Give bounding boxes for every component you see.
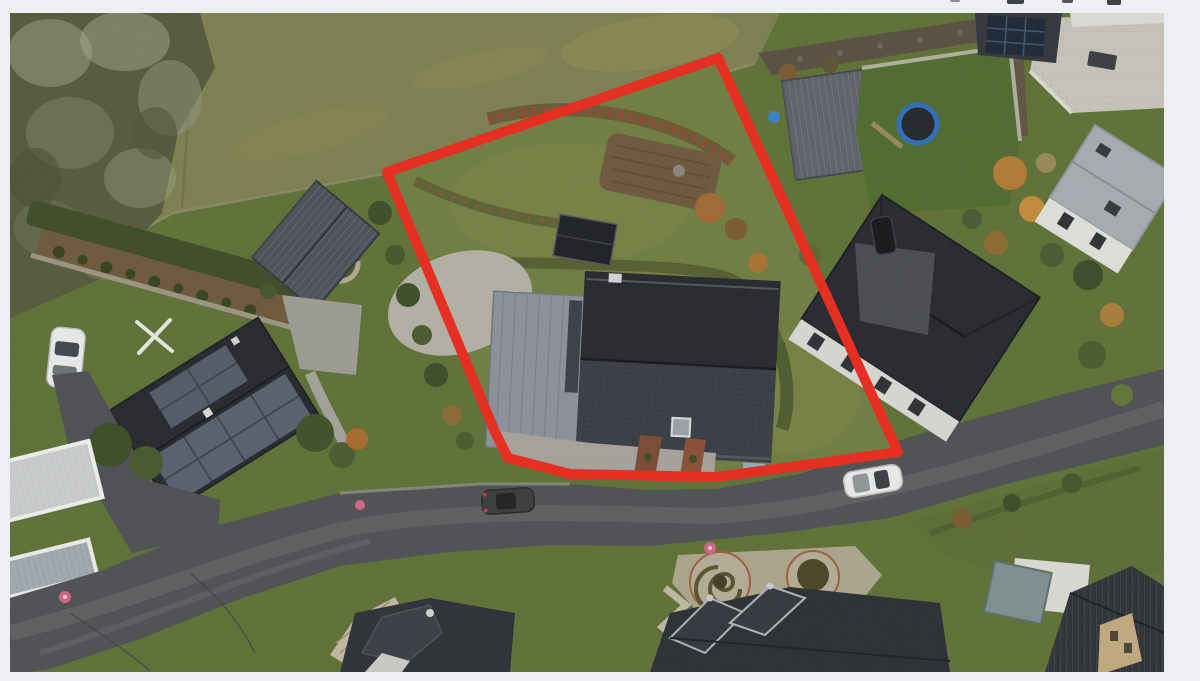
- toolbar-icon-fragment-3[interactable]: [1062, 0, 1073, 3]
- page-background: [0, 0, 1200, 681]
- photo-grain: [10, 13, 1164, 672]
- toolbar-icon-fragment-1[interactable]: [950, 0, 960, 2]
- aerial-photo-canvas: [10, 13, 1164, 672]
- toolbar-icon-fragment-2[interactable]: [1007, 0, 1024, 4]
- aerial-photo: [10, 13, 1164, 672]
- toolbar-icon-fragment-4[interactable]: [1107, 0, 1121, 5]
